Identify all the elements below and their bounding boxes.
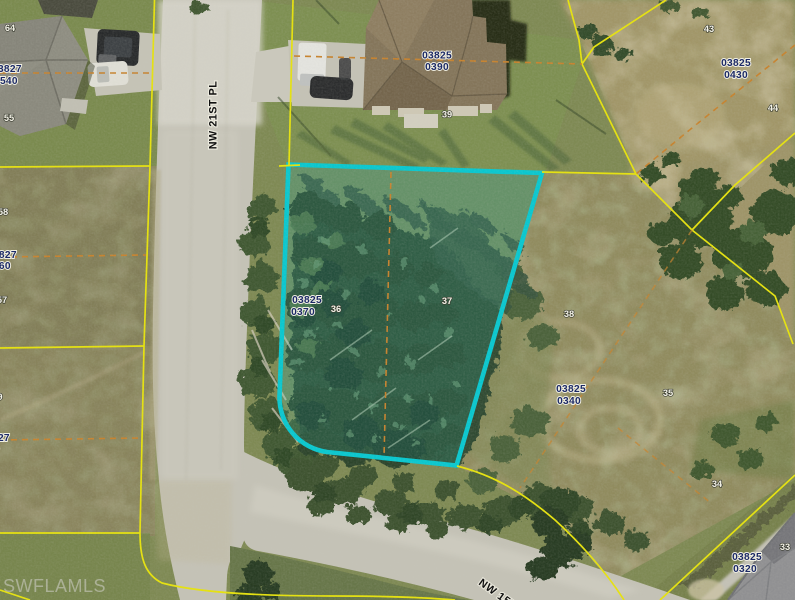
svg-text:03825: 03825: [292, 295, 322, 306]
svg-text:0560: 0560: [0, 261, 11, 272]
svg-text:35: 35: [663, 388, 673, 398]
svg-text:39: 39: [442, 110, 452, 120]
svg-text:03827: 03827: [0, 64, 22, 75]
svg-text:55: 55: [4, 113, 14, 123]
svg-text:38: 38: [564, 309, 574, 319]
svg-text:0430: 0430: [724, 70, 748, 81]
svg-text:SWFLAMLS: SWFLAMLS: [3, 576, 106, 596]
svg-text:33: 33: [780, 542, 790, 552]
svg-text:43: 43: [704, 24, 714, 34]
svg-text:64: 64: [5, 23, 16, 33]
svg-text:027: 027: [0, 433, 10, 444]
svg-text:0340: 0340: [557, 396, 581, 407]
svg-text:03825: 03825: [732, 552, 762, 563]
svg-text:0540: 0540: [0, 76, 18, 87]
svg-text:37: 37: [442, 296, 452, 306]
svg-text:44: 44: [768, 103, 779, 113]
svg-text:03827: 03827: [0, 250, 17, 261]
svg-text:58: 58: [0, 207, 8, 217]
svg-text:03825: 03825: [556, 384, 586, 395]
svg-text:9: 9: [0, 392, 3, 402]
svg-text:0370: 0370: [291, 307, 315, 318]
svg-text:0320: 0320: [733, 564, 757, 575]
svg-text:03825: 03825: [721, 58, 751, 69]
svg-text:36: 36: [331, 304, 341, 314]
svg-text:0390: 0390: [425, 62, 449, 73]
svg-text:03825: 03825: [422, 51, 452, 62]
svg-text:NW 21ST PL: NW 21ST PL: [208, 81, 220, 150]
svg-text:34: 34: [712, 479, 723, 489]
svg-text:57: 57: [0, 295, 7, 305]
